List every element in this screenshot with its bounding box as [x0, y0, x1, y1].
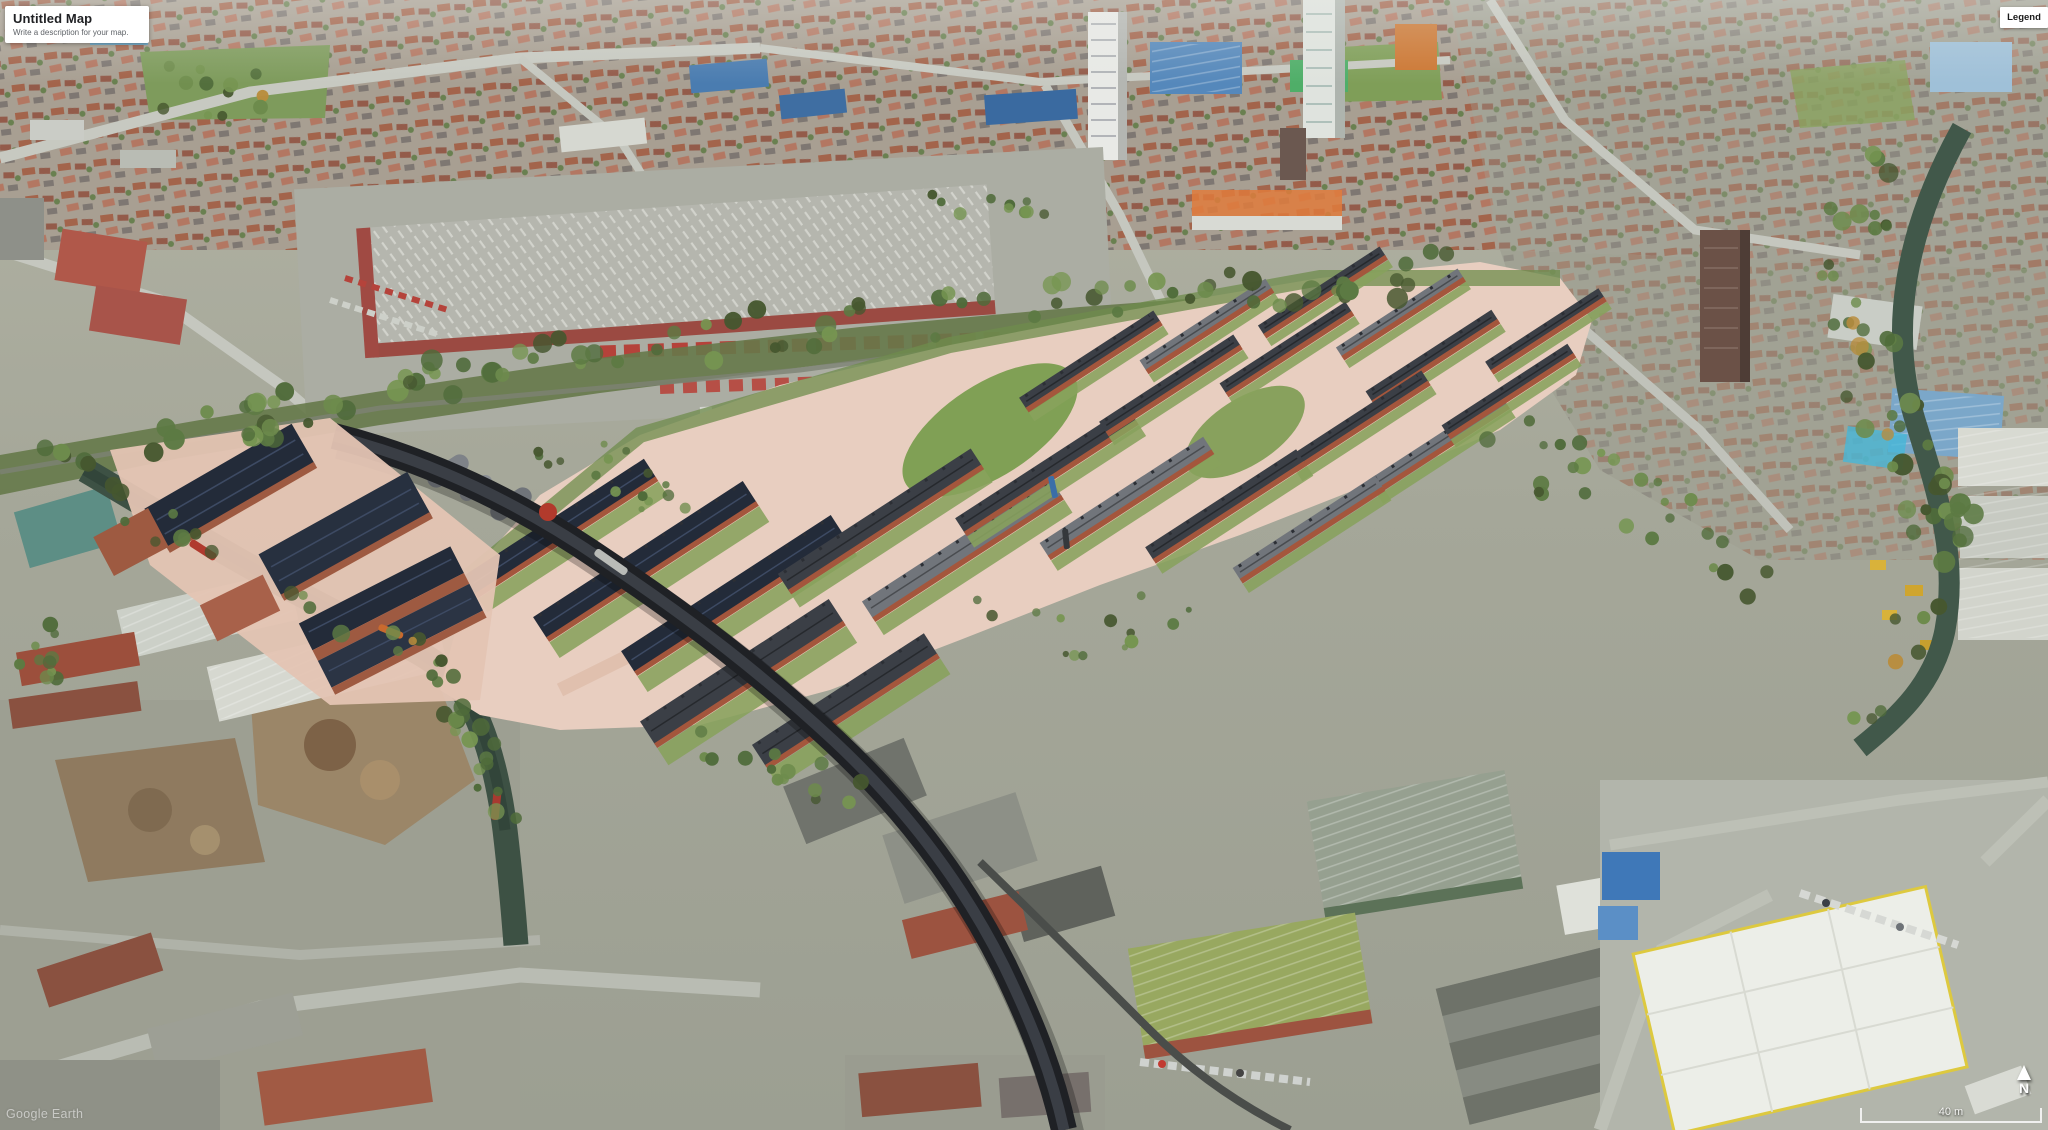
google-mymaps-preview-window: Untitled Map Write a description for you… [0, 0, 2048, 1130]
map-description-placeholder: Write a description for your map. [13, 28, 141, 37]
scale-label: 40 m [1862, 1106, 2040, 1118]
map-info-card: Untitled Map Write a description for you… [5, 6, 149, 43]
industrial-southeast [1598, 780, 2048, 1130]
aerial-imagery [0, 0, 2048, 1130]
compass-control[interactable]: N [2013, 1065, 2035, 1096]
scale-bar: 40 m [1860, 1108, 2042, 1123]
legend-button[interactable]: Legend [2000, 7, 2048, 28]
google-earth-watermark: Google Earth [6, 1107, 83, 1121]
north-arrow-icon [2017, 1065, 2031, 1080]
map-canvas[interactable] [0, 0, 2048, 1130]
map-title: Untitled Map [13, 11, 141, 26]
compass-north-label: N [2013, 1081, 2035, 1096]
